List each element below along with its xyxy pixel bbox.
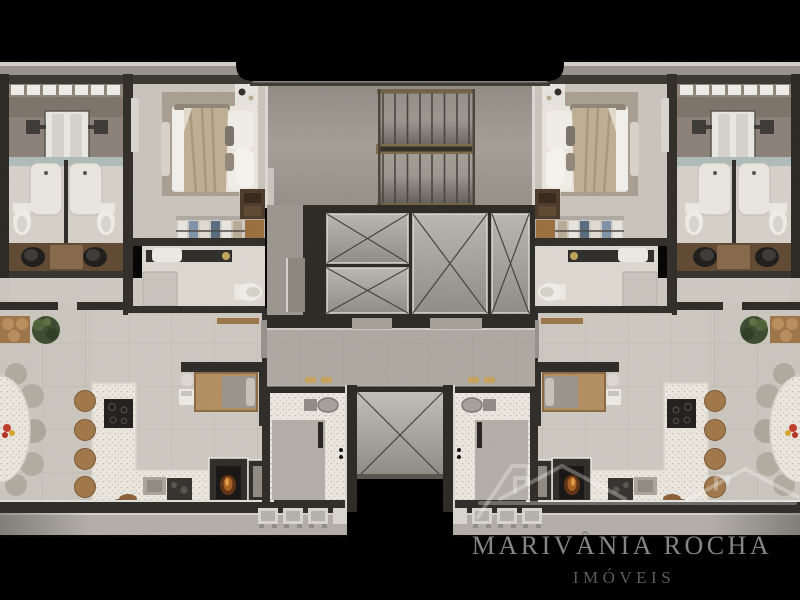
svg-text:MARIVÂNIA ROCHA: MARIVÂNIA ROCHA [472, 531, 772, 560]
svg-text:IMÓVEIS: IMÓVEIS [573, 568, 675, 587]
